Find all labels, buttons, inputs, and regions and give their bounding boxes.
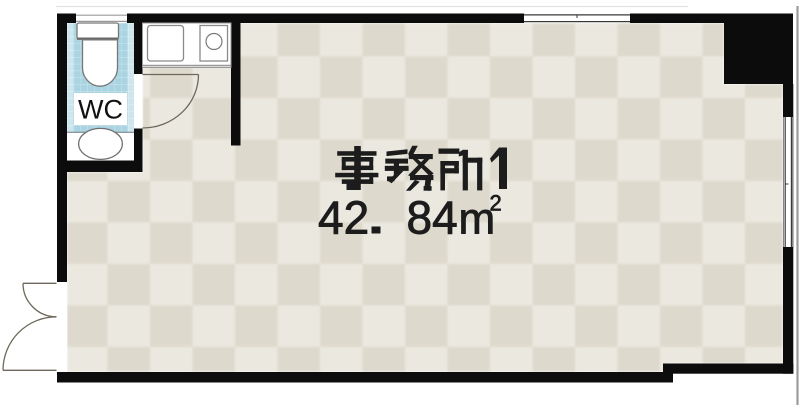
svg-text:WC: WC bbox=[78, 95, 123, 125]
svg-text:42: 42 bbox=[318, 192, 369, 244]
svg-text:2: 2 bbox=[490, 191, 502, 216]
svg-text:84: 84 bbox=[407, 192, 458, 244]
